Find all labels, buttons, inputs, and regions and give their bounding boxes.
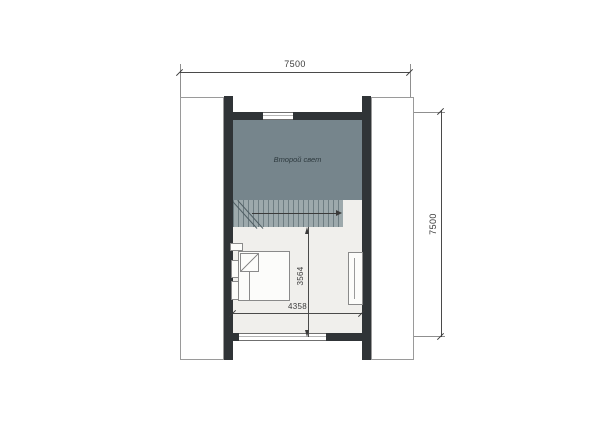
wall-top-segment-left	[233, 112, 263, 120]
wall-right	[362, 96, 371, 360]
wardrobe	[348, 252, 363, 305]
staircase-direction-line	[252, 213, 336, 214]
wardrobe-door-line	[354, 258, 355, 299]
wall-bottom-segment-right	[326, 333, 362, 341]
wall-top-segment-right	[293, 112, 362, 120]
dim-height-label: 3564	[295, 261, 307, 291]
wall-left	[224, 96, 233, 360]
dim-width-line	[233, 313, 362, 314]
dim-height-line	[308, 227, 309, 337]
void-label: Второй свет	[233, 155, 362, 165]
dim-top-line	[180, 72, 410, 73]
window-bottom	[239, 333, 326, 341]
dim-height-arrow-top	[305, 227, 309, 234]
dim-top-label: 7500	[180, 58, 410, 70]
roof-panel-left	[180, 97, 224, 360]
staircase-direction-arrow	[336, 210, 342, 216]
dim-right-label: 7500	[427, 209, 439, 239]
roof-panel-right	[371, 97, 414, 360]
dim-right-line	[441, 110, 442, 337]
dim-width-label: 4358	[233, 301, 362, 313]
floor-plan-canvas: 7500 7500 Второй свет 4358 3564	[0, 0, 600, 425]
nightstand-top	[230, 243, 243, 251]
window-top	[263, 112, 293, 120]
dim-height-arrow-bottom	[305, 330, 309, 337]
bed-fold-line	[249, 272, 250, 301]
bed-pillow	[240, 253, 259, 272]
